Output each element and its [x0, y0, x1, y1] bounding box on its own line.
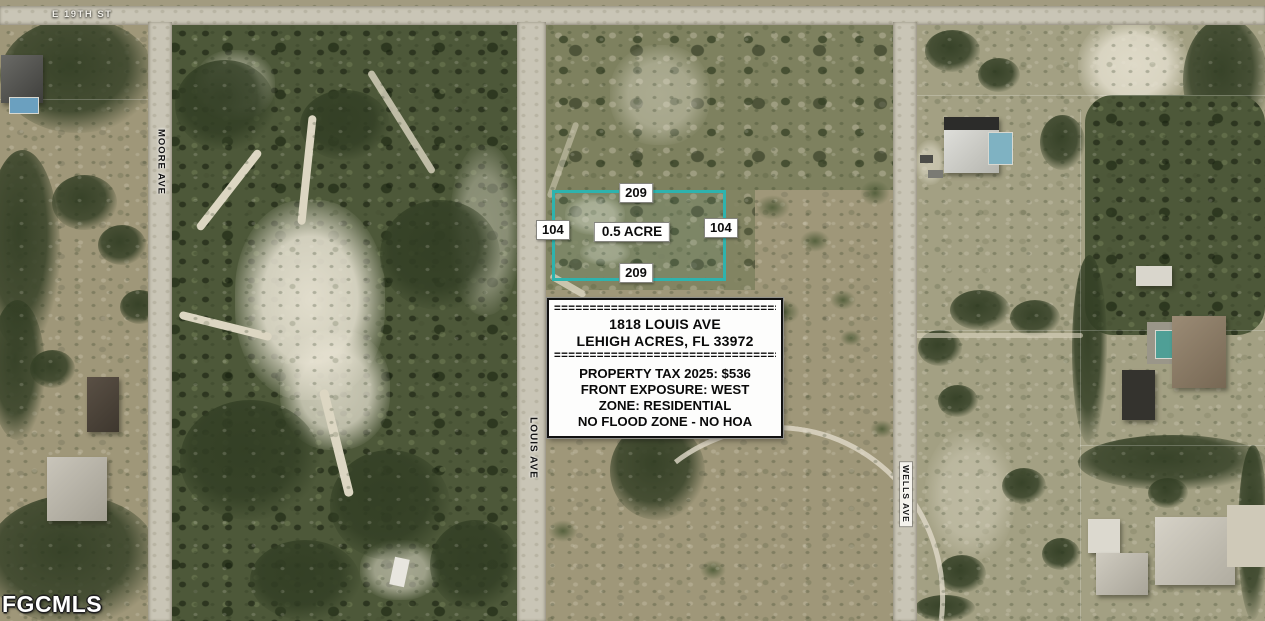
street-label-moore-ave: MOORE AVE	[156, 129, 167, 195]
shed	[1088, 519, 1120, 553]
street-label-e-19th-st: E 19TH ST	[52, 9, 113, 20]
parcel-dim-bottom: 209	[619, 263, 653, 283]
bush	[860, 180, 890, 206]
info-property-tax: PROPERTY TAX 2025: $536	[551, 366, 779, 382]
sand-patch	[925, 430, 1015, 560]
info-zone: ZONE: RESIDENTIAL	[551, 398, 779, 414]
parcel-acreage-label: 0.5 ACRE	[594, 222, 670, 242]
tree-cluster	[380, 200, 500, 310]
car	[920, 155, 933, 163]
tree-cluster	[180, 400, 320, 520]
road-louis-ave	[517, 22, 546, 621]
info-separator: ==================================	[554, 351, 776, 362]
tree-cluster	[1148, 478, 1188, 508]
tree-cluster	[250, 540, 360, 620]
street-label-wells-ave: WELLS AVE	[900, 462, 912, 526]
house	[87, 377, 119, 432]
parcel-dim-left: 104	[536, 220, 570, 240]
roof-section	[944, 117, 999, 130]
parcel-gridline	[893, 95, 1265, 96]
house	[1, 55, 43, 103]
house	[1155, 517, 1235, 585]
sand-patch	[610, 45, 710, 145]
tree-cluster	[330, 450, 450, 560]
aerial-map: E 19TH ST MOORE AVE LOUIS AVE WELLS AVE …	[0, 0, 1265, 621]
tree-cluster	[175, 60, 275, 150]
bush	[870, 420, 894, 438]
info-front-exposure: FRONT EXPOSURE: WEST	[551, 382, 779, 398]
tree-cluster	[1085, 95, 1265, 335]
swimming-pool	[9, 97, 39, 114]
bush	[830, 290, 856, 310]
driveway	[1227, 505, 1265, 567]
trail-dirt-road	[893, 333, 1083, 338]
house	[1172, 316, 1226, 388]
tree-cluster	[950, 290, 1010, 330]
bush	[840, 330, 862, 346]
info-address-line1: 1818 LOUIS AVE	[551, 316, 779, 333]
parcel-dim-top: 209	[619, 183, 653, 203]
info-separator: ==================================	[554, 304, 776, 315]
tree-cluster	[925, 30, 980, 72]
tree-cluster	[30, 350, 75, 388]
garage	[1122, 370, 1155, 420]
tree-cluster	[1002, 468, 1046, 504]
tree-cluster	[52, 175, 117, 230]
house	[1096, 553, 1148, 595]
tree-cluster	[978, 58, 1020, 92]
swimming-pool	[988, 132, 1013, 165]
info-address-line2: LEHIGH ACRES, FL 33972	[551, 333, 779, 350]
bush	[800, 230, 830, 252]
property-info-box: ================================== 1818 …	[547, 298, 783, 438]
mls-watermark: FGCMLS	[2, 591, 102, 618]
parcel-dim-right: 104	[704, 218, 738, 238]
tree-cluster	[98, 225, 146, 265]
road-wells-ave	[893, 22, 917, 621]
shed	[1136, 266, 1172, 286]
parcel-gridline	[1080, 110, 1081, 621]
car	[928, 170, 943, 178]
road-moore-ave	[148, 22, 172, 621]
street-label-louis-ave: LOUIS AVE	[528, 417, 539, 479]
parcel-gridline	[1080, 445, 1265, 446]
tree-cluster	[430, 520, 520, 610]
terrain-center-scrub	[545, 24, 895, 190]
tree-cluster	[1040, 115, 1085, 170]
house	[47, 457, 107, 521]
tree-cluster	[1042, 538, 1080, 570]
tree-cluster	[938, 385, 978, 417]
road-e-19th-st	[0, 6, 1265, 25]
bush	[755, 195, 790, 220]
tree-cluster	[1072, 255, 1107, 445]
tree-cluster	[938, 555, 986, 593]
bush	[548, 520, 578, 542]
info-flood-hoa: NO FLOOD ZONE - NO HOA	[551, 414, 779, 430]
